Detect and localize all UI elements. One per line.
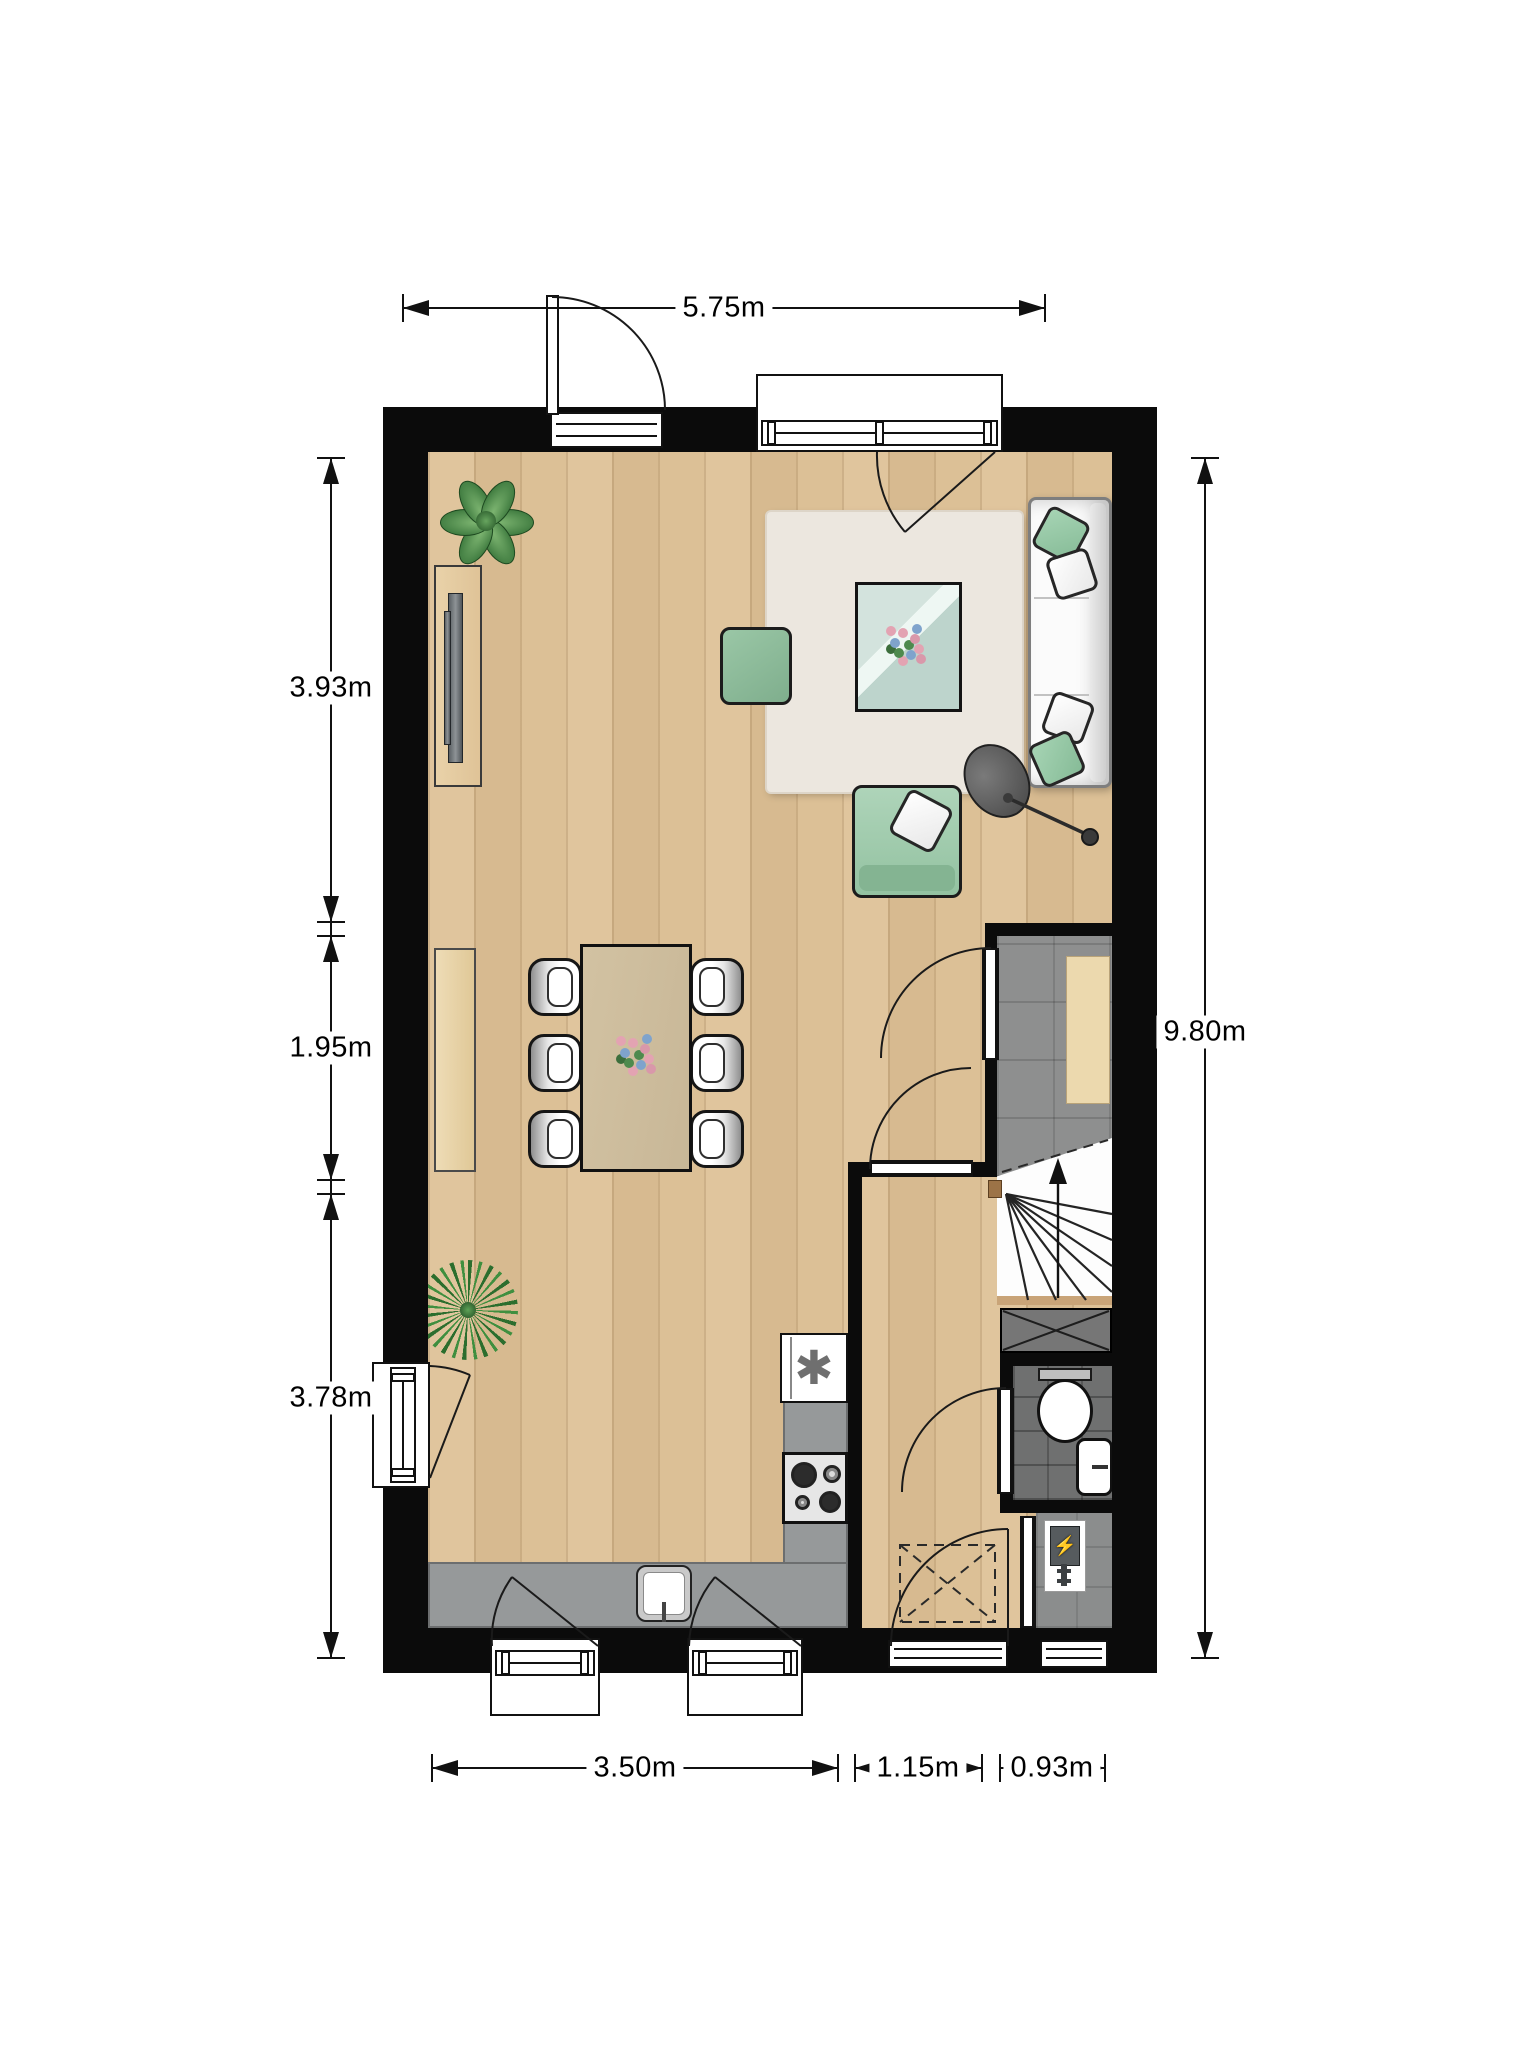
stair-newel: [988, 1180, 1002, 1198]
plant-spiky-icon: [418, 1260, 518, 1360]
dim-left-1: 3.93m: [282, 672, 379, 705]
wall-toilet-left-a: [1000, 1366, 1013, 1388]
entry-door-top-threshold: [550, 412, 663, 448]
arc-entry-door-top: [552, 297, 665, 410]
dining-chair: [528, 958, 582, 1016]
dining-chair: [690, 958, 744, 1016]
dim-right-height: 9.80m: [1156, 1016, 1253, 1049]
fridge-freezer: ✱: [780, 1333, 848, 1403]
window-bottom-2: [687, 1638, 803, 1716]
window-left: [372, 1362, 430, 1488]
dim-bottom-1: 3.50m: [586, 1752, 683, 1785]
dim-bottom-2: 1.15m: [869, 1752, 966, 1785]
hand-basin-icon: [1076, 1438, 1113, 1496]
boiler-flange: [1057, 1569, 1071, 1573]
wall-corridor-top-a: [848, 1162, 870, 1177]
dining-chair: [528, 1110, 582, 1168]
dining-chair: [528, 1034, 582, 1092]
duct-shaft: [1000, 1308, 1112, 1353]
wall-hall-top: [985, 923, 1112, 936]
flower-bouquet-icon: [616, 1036, 626, 1046]
wall-shaft-bottom: [1000, 1353, 1112, 1366]
freezer-asterisk-icon: ✱: [782, 1335, 846, 1401]
wall-corridor-top-b: [973, 1162, 997, 1177]
coffee-table: [855, 582, 962, 712]
gas-hob: [782, 1452, 848, 1524]
dim-left-3: 3.78m: [282, 1382, 379, 1415]
dining-chair: [690, 1034, 744, 1092]
plant-round-icon: [443, 478, 529, 564]
boiler-flange: [1057, 1579, 1071, 1583]
doormat: [1066, 956, 1110, 1104]
kitchen-sink: [636, 1565, 692, 1622]
door-utility: [1020, 1516, 1036, 1628]
dim-left-2: 1.95m: [282, 1032, 379, 1065]
dim-top-width: 5.75m: [675, 292, 772, 325]
dim-bottom-3: 0.93m: [1003, 1752, 1100, 1785]
dining-table: [580, 944, 692, 1172]
flower-bouquet-icon: [886, 626, 896, 636]
entry-door-top-leaf: [546, 295, 559, 415]
window-utility: [1040, 1640, 1108, 1668]
dining-chair: [690, 1110, 744, 1168]
wall-hall-left-a: [985, 923, 997, 948]
front-door-threshold: [888, 1640, 1008, 1668]
sideboard-tv: [434, 565, 482, 787]
boiler-bolt-icon: ⚡: [1053, 1534, 1077, 1558]
door-corridor-living: [870, 1160, 973, 1177]
floor-plan: ⚡ ✱: [0, 0, 1536, 2048]
wall-hall-left-b: [985, 1060, 997, 1177]
door-hall-living: [982, 948, 999, 1060]
window-top: [756, 374, 1003, 452]
radiator: [434, 948, 476, 1172]
wall-toilet-bottom: [1000, 1500, 1112, 1513]
boiler-icon: ⚡: [1050, 1526, 1080, 1566]
pouf: [720, 627, 792, 705]
wall-kitchen-corridor: [848, 1177, 862, 1628]
window-bottom-1: [490, 1638, 600, 1716]
toilet-icon: [1037, 1379, 1093, 1443]
wall-right: [1112, 407, 1157, 1673]
stair-stringer: [997, 1296, 1112, 1305]
door-toilet: [997, 1388, 1014, 1494]
